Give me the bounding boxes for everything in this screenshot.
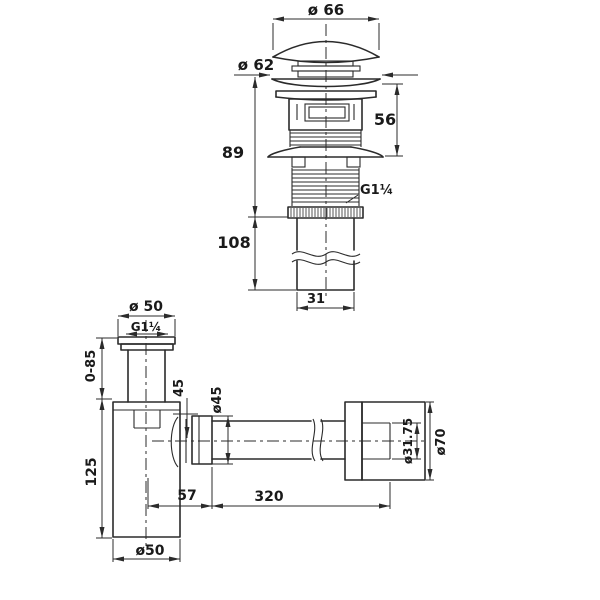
dim-outlet-pipe-diameter: ø31.75: [392, 418, 421, 464]
dim-drain-tail-length: 108: [217, 217, 296, 290]
trap-elbow-curve: [171, 417, 178, 467]
dim-label-cap-diameter: ø 66: [308, 1, 344, 19]
popup-drain-figure: ø 66 ø 62 56 89 108 G1¼: [217, 1, 418, 311]
dim-label-inlet-drop: 45: [172, 379, 187, 397]
technical-drawing: ø 66 ø 62 56 89 108 G1¼: [0, 0, 600, 600]
bottle-trap-figure: ø 50 G1¼ 0-85 125 ø50 45: [84, 299, 449, 562]
dim-label-height: 89: [222, 143, 244, 162]
dim-label-tail-length: 108: [217, 233, 250, 252]
dim-label-flange-diameter: ø 62: [238, 56, 274, 74]
dim-trap-adjust-range: 0-85: [84, 338, 117, 399]
dim-label-body-diameter: ø50: [135, 543, 164, 559]
dim-label-outlet-pipe-diameter: ø31.75: [401, 418, 415, 464]
dim-label-outlet-length: 320: [254, 489, 283, 505]
dim-label-inlet-thread: G1¼: [131, 320, 162, 334]
dim-trap-inlet-thread: G1¼: [126, 320, 168, 334]
dim-trap-inlet-drop: 45: [172, 379, 198, 438]
dim-drain-upper-height: 56: [374, 84, 403, 156]
dim-label-adjust-range: 0-85: [84, 350, 99, 383]
technical-drawing-page: ø 66 ø 62 56 89 108 G1¼: [0, 0, 600, 600]
dim-label-outlet-offset: 57: [177, 488, 196, 504]
dim-label-wall-flange-diameter: ø70: [434, 428, 449, 455]
drain-upper-thread: [290, 130, 361, 147]
dim-wall-flange-diameter: ø70: [426, 402, 449, 480]
dim-outlet-length: 320: [212, 482, 390, 509]
dim-label-inlet-diameter: ø 50: [129, 299, 163, 315]
break-line: [312, 419, 323, 461]
dim-label-tail-width: 31: [307, 292, 325, 307]
dim-label-body-height: 125: [84, 457, 100, 486]
outlet-nut: [186, 416, 212, 464]
dim-outlet-nut-diameter: ø45: [202, 386, 233, 464]
dim-trap-body-height: 125: [84, 399, 112, 538]
dim-label-drain-thread: G1¼: [360, 183, 393, 198]
dim-label-nut-diameter: ø45: [210, 386, 225, 413]
dim-label-upper-height: 56: [374, 110, 396, 129]
dim-trap-body-diameter: ø50: [113, 539, 180, 562]
outlet-pipe: [212, 419, 345, 461]
